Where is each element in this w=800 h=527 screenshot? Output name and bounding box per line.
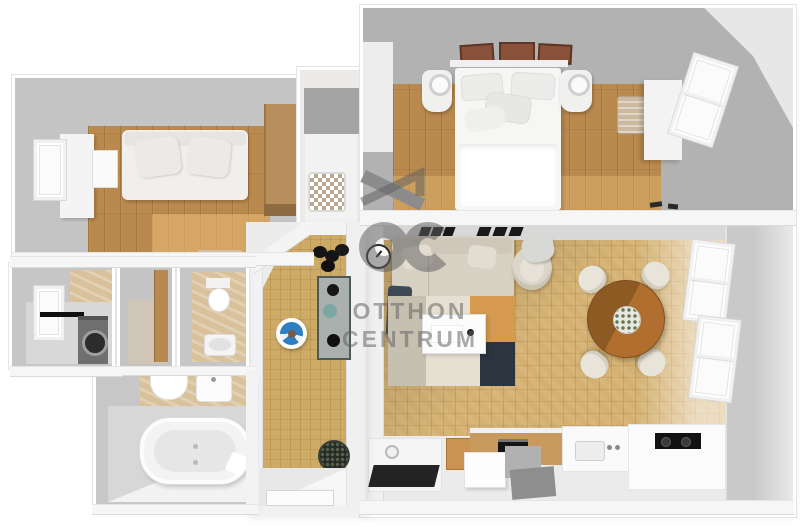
closet xyxy=(120,266,172,366)
double-bed xyxy=(455,68,561,210)
pantry-back-wall xyxy=(304,88,362,134)
clock-hand xyxy=(376,250,383,257)
decor-black-item xyxy=(492,227,507,236)
hand-sink xyxy=(204,334,236,356)
washer-door xyxy=(82,330,108,356)
moving-box-gray xyxy=(510,466,556,500)
dining-table xyxy=(587,280,665,358)
wall xyxy=(246,370,258,510)
laundry-basket xyxy=(617,96,645,134)
console-table xyxy=(317,276,351,360)
sofa xyxy=(122,130,248,200)
decor-black-item xyxy=(508,227,523,236)
table-tray xyxy=(431,325,463,343)
nightstand-right xyxy=(560,70,592,112)
wall xyxy=(122,366,256,376)
utility-room xyxy=(12,266,112,366)
tv-desk xyxy=(368,438,442,492)
sofa-pillow xyxy=(134,135,183,179)
coffee-table xyxy=(422,314,486,354)
wall xyxy=(360,500,794,515)
kitchen-counter-right xyxy=(628,424,726,490)
wood-shelf xyxy=(264,204,302,216)
decor-dash xyxy=(668,203,678,209)
right-wall-face xyxy=(727,224,793,514)
wc xyxy=(180,266,246,366)
bathtub xyxy=(140,418,250,484)
faucet-dot xyxy=(607,445,612,450)
decor-black-item xyxy=(442,227,455,236)
sofa-pillow xyxy=(186,136,232,179)
bedroom xyxy=(363,8,793,218)
kitchen-sink xyxy=(575,441,605,461)
entry-door xyxy=(266,490,334,506)
wall xyxy=(360,210,796,226)
decor-black-item xyxy=(476,227,491,236)
burner xyxy=(661,437,671,447)
table-lamp xyxy=(568,74,590,96)
headboard-shelf xyxy=(450,60,568,67)
rug-gray-section xyxy=(388,296,426,386)
nightstand-left xyxy=(422,70,452,112)
console-decor-black xyxy=(327,284,339,296)
sofa-pillow xyxy=(467,244,498,270)
table-centerpiece xyxy=(613,306,641,334)
wall xyxy=(92,504,258,515)
table-decor-dot xyxy=(467,329,474,336)
desk-dark-slab xyxy=(368,465,439,487)
faucet-dot xyxy=(211,377,216,382)
storage-basket xyxy=(308,172,346,212)
drain-dot xyxy=(193,444,198,449)
burner xyxy=(681,437,691,447)
left-wall-panel xyxy=(363,42,393,152)
bedroom-window xyxy=(668,53,738,147)
toilet xyxy=(208,288,230,312)
bathtub-basin xyxy=(154,430,236,472)
drain-dot xyxy=(193,460,198,465)
washing-machine xyxy=(78,316,108,364)
wood-wardrobe xyxy=(264,104,304,204)
window xyxy=(34,140,66,200)
moving-box-white xyxy=(464,452,506,488)
bed-pillow xyxy=(463,105,506,134)
sofa-seat-line xyxy=(428,254,429,296)
toilet-tank xyxy=(206,278,230,288)
cooktop xyxy=(655,433,701,449)
window-pane xyxy=(39,145,61,195)
wall xyxy=(10,256,256,268)
ottoman-center xyxy=(288,330,296,338)
wall-clock xyxy=(366,244,391,269)
living-dining-kitchen xyxy=(363,224,793,514)
hall-wall-right xyxy=(346,222,364,515)
floorplan-image: oc OTTHON CENTRUM xyxy=(0,0,800,527)
blue-ottoman xyxy=(276,318,307,349)
sink-bowl xyxy=(209,338,231,351)
wall-plant xyxy=(313,246,327,258)
bed-duvet xyxy=(459,144,557,206)
wooden-door xyxy=(154,270,168,362)
console-decor-black xyxy=(327,334,340,347)
washbasin xyxy=(196,374,232,402)
desk xyxy=(92,150,118,188)
wall xyxy=(10,366,122,377)
bathroom xyxy=(96,374,254,508)
console-decor-teal xyxy=(323,304,337,318)
faucet-dot xyxy=(615,445,620,450)
wall xyxy=(246,506,366,515)
desk-knob xyxy=(385,445,399,459)
kitchen-sink-counter xyxy=(562,426,630,472)
table-lamp xyxy=(429,74,451,96)
